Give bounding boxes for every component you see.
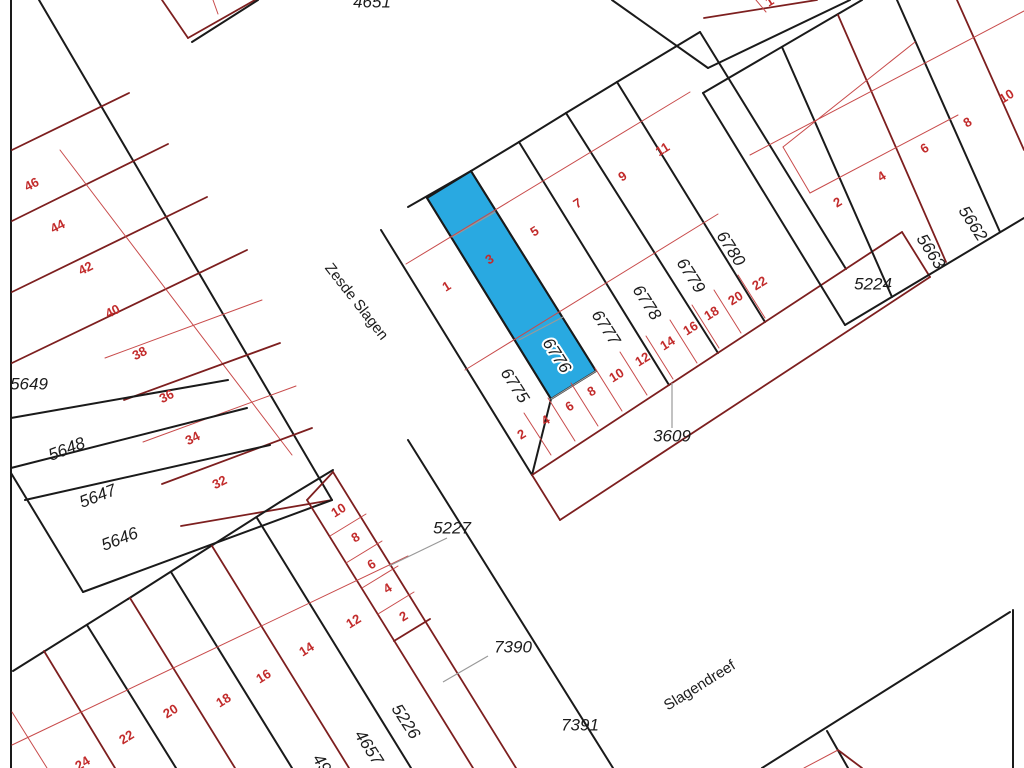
house-number-18: 18 <box>213 690 233 710</box>
house-number-14: 14 <box>296 639 317 660</box>
house-number-38: 38 <box>130 343 150 363</box>
boundary-line <box>708 0 850 68</box>
boundary-line <box>394 619 430 641</box>
leader-line <box>389 538 447 566</box>
parcel-label-6775: 6775 <box>497 364 534 407</box>
boundary-line <box>257 518 411 768</box>
parcel-label-6778: 6778 <box>629 281 666 324</box>
parcel-label-5649: 5649 <box>10 374 48 393</box>
street-name-slagendreef: Slagendreef <box>661 656 739 714</box>
boundary-line <box>612 0 708 68</box>
boundary-line <box>471 142 519 171</box>
boundary-line <box>532 232 902 475</box>
parcel-label-5662: 5662 <box>955 202 992 245</box>
house-number-7: 7 <box>570 195 584 212</box>
house-number-2: 2 <box>830 194 844 211</box>
boundary-line <box>192 0 258 42</box>
boundary-line <box>12 93 129 150</box>
boundary-line <box>750 11 1024 155</box>
boundary-line <box>162 0 188 38</box>
parcel-label-5227: 5227 <box>433 518 471 537</box>
house-number-8: 8 <box>960 114 974 131</box>
boundary-line <box>703 93 845 325</box>
house-number-8: 8 <box>584 383 598 400</box>
boundary-line <box>617 32 700 82</box>
house-number-20: 20 <box>160 701 180 721</box>
boundary-line <box>280 470 333 502</box>
house-number-6: 6 <box>364 556 378 573</box>
parcel-label-7391: 7391 <box>561 715 599 734</box>
house-number-20: 20 <box>725 288 745 308</box>
house-number-6: 6 <box>917 140 931 157</box>
house-number-9: 9 <box>615 168 629 185</box>
house-number-10: 10 <box>996 86 1016 106</box>
boundary-line <box>130 598 235 768</box>
house-number-4: 4 <box>538 411 553 428</box>
boundary-line <box>171 572 292 768</box>
parcel-label-49: 49 <box>309 750 336 768</box>
parcel-label-5647: 5647 <box>77 480 120 511</box>
boundary-line <box>532 475 560 520</box>
boundary-line <box>762 612 1010 768</box>
boundary-line <box>307 500 473 768</box>
house-number-11: 11 <box>653 139 673 159</box>
house-number-24: 24 <box>72 753 93 768</box>
street-name-zesde-slagen: Zesde Slagen <box>321 260 391 343</box>
boundary-line <box>12 250 247 363</box>
parcel-label-4651: 4651 <box>353 0 391 11</box>
house-number-44: 44 <box>48 216 68 236</box>
house-number-6: 6 <box>562 398 576 415</box>
boundary-line <box>12 197 207 292</box>
parcel-label-5648: 5648 <box>46 433 89 464</box>
house-number-12: 12 <box>343 611 363 631</box>
boundary-line <box>378 592 414 614</box>
house-number-2: 2 <box>514 426 528 443</box>
boundary-line <box>897 0 1000 232</box>
boundary-line <box>804 750 838 768</box>
map-canvas: 4651564956485647564667756777677867796780… <box>0 0 1024 768</box>
house-number-46: 46 <box>22 174 42 194</box>
house-number-5: 5 <box>527 223 541 240</box>
boundary-line <box>87 625 176 768</box>
house-number-32: 32 <box>210 472 230 492</box>
boundary-line <box>704 0 817 18</box>
parcel-label-5646: 5646 <box>99 523 142 554</box>
parcel-number-labels: 4651564956485647564667756777677867796780… <box>10 0 991 768</box>
house-number-22: 22 <box>749 273 769 293</box>
boundary-line <box>519 113 566 142</box>
parcel-label-3609: 3609 <box>653 426 691 445</box>
boundary-line <box>566 82 617 113</box>
parcel-label-5226: 5226 <box>388 700 425 743</box>
boundary-line <box>838 15 946 262</box>
parcel-label-7390: 7390 <box>494 637 532 656</box>
cadastral-map: 4651564956485647564667756777677867796780… <box>0 0 1024 768</box>
boundary-line <box>128 502 280 599</box>
boundary-line <box>406 92 690 264</box>
house-number-4: 4 <box>874 167 889 184</box>
boundary-line <box>212 546 349 768</box>
parcel-label-5224: 5224 <box>854 274 892 293</box>
boundary-line <box>44 651 115 768</box>
house-number-14: 14 <box>657 333 678 354</box>
house-number-34: 34 <box>183 428 203 448</box>
house-number-18: 18 <box>701 303 721 323</box>
boundary-line <box>13 599 128 671</box>
house-number-16: 16 <box>253 666 273 686</box>
boundary-line <box>39 0 332 500</box>
house-number-42: 42 <box>76 258 96 278</box>
parcel-label-6777: 6777 <box>588 306 625 349</box>
boundary-line <box>12 712 47 768</box>
house-number-22: 22 <box>116 727 136 747</box>
house-number-2: 2 <box>396 608 410 625</box>
boundary-line <box>783 147 810 193</box>
boundary-line <box>11 473 83 592</box>
house-number-10: 10 <box>606 365 626 385</box>
boundary-line <box>188 0 255 38</box>
house-number-10: 10 <box>328 500 348 520</box>
house-number-1: 1 <box>439 278 453 295</box>
boundary-line <box>60 150 292 455</box>
house-number-8: 8 <box>348 529 362 546</box>
boundary-line <box>560 277 930 520</box>
parcel-label-6780: 6780 <box>713 227 750 270</box>
boundary-line <box>838 750 862 768</box>
boundary-line <box>213 0 218 14</box>
house-number-4: 4 <box>380 579 395 596</box>
parcel-label-4657: 4657 <box>351 726 388 768</box>
boundary-line <box>12 556 408 745</box>
